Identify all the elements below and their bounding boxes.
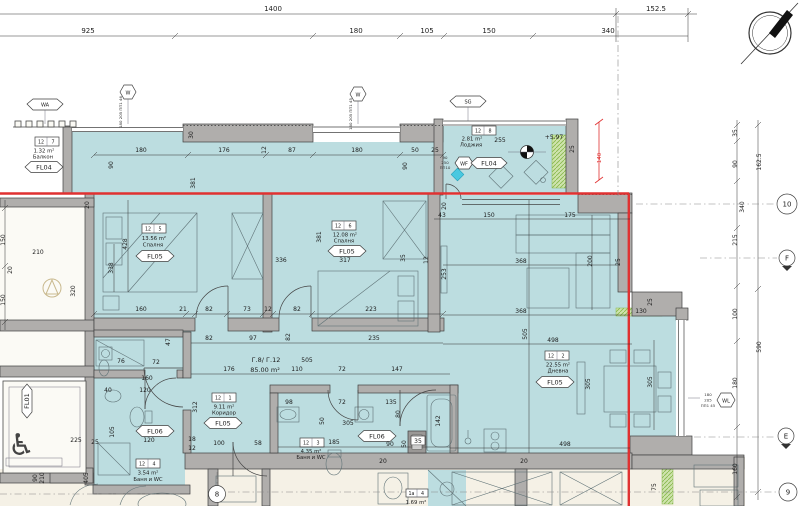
svg-text:12: 12 [548, 354, 554, 360]
dim: 98 [285, 399, 293, 406]
dim-v: 100 [732, 308, 739, 320]
dim: 25 [91, 439, 99, 446]
dim: 12 [264, 306, 272, 313]
dim: 75 [651, 483, 658, 491]
room-area: 2.81 m² [462, 136, 483, 143]
dim: 150 [0, 234, 7, 246]
dim: 80 [395, 410, 402, 418]
window-spec: 205 [704, 398, 712, 403]
dim: 381 [316, 231, 323, 243]
dim-v: 160 [732, 463, 739, 475]
tag-SG: SG [450, 96, 486, 121]
dim: 253 [441, 268, 448, 280]
svg-text:12: 12 [38, 140, 44, 146]
dim: 498 [559, 441, 571, 448]
dim: 35 [400, 254, 407, 262]
axis-label: 8 [215, 491, 219, 499]
svg-text:W: W [126, 91, 131, 97]
dim: 185 [328, 439, 340, 446]
dim-seg: 925 [81, 27, 94, 35]
dim: 20 [441, 202, 448, 210]
room-area: 1.69 m² [406, 499, 427, 506]
dim: 200 [587, 255, 594, 267]
svg-text:4: 4 [152, 462, 155, 468]
svg-text:3: 3 [316, 441, 319, 447]
room-area: 4.35 m² [301, 448, 322, 455]
dim: 18 [188, 436, 196, 443]
dim: 20 [520, 458, 528, 465]
svg-text:12: 12 [475, 129, 481, 135]
dim: 12 [261, 146, 268, 154]
svg-text:12: 12 [215, 396, 221, 402]
dim: 20 [379, 458, 387, 465]
tag-W2: W 180 205 ПП1 45 [348, 87, 366, 130]
dim: 405 [83, 472, 90, 484]
dim: 50 [411, 147, 419, 154]
dim: 150 [0, 294, 7, 306]
room-name: Коридор [212, 411, 237, 417]
dim-seg: 180 [349, 27, 362, 35]
floor-label: FL05 [547, 379, 563, 387]
dim-seg: 150 [482, 27, 495, 35]
dim-v: 162.5 [756, 153, 763, 170]
dim: 223 [365, 306, 377, 313]
dim: 225 [70, 437, 82, 444]
floor-label: FL06 [369, 433, 385, 441]
dim-v: 215 [732, 234, 739, 246]
dim: 130 [635, 308, 647, 315]
room-area: 3.54 m² [138, 470, 159, 477]
level-label: +5.97 [545, 134, 564, 141]
wheelchair-icon: ♿ [8, 428, 35, 463]
tag-WL: WL 180 205 ПП1 45 [688, 392, 735, 408]
svg-text:W: W [356, 93, 361, 99]
dim-right-offset: 152.5 [646, 5, 666, 13]
dim: 82 [205, 335, 213, 342]
floor-label: FL06 [147, 428, 163, 436]
dim: 505 [522, 328, 529, 340]
dim: 176 [223, 366, 235, 373]
dim: 90 [108, 161, 115, 169]
dim: 150 [483, 212, 495, 219]
floor-plan-canvas: ♿ FL01 [0, 0, 800, 506]
dim: 73 [243, 306, 251, 313]
dim: 21 [179, 306, 187, 313]
dim: 72 [338, 366, 346, 373]
window-spec: 180 205 ПП1 46 [118, 96, 123, 128]
dim: 40 [104, 387, 112, 394]
dim: 180 [351, 147, 363, 154]
dim: 336 [275, 257, 287, 264]
apartment-code: Г.8/ Г.12 [252, 356, 281, 364]
dim: 30 [188, 131, 195, 139]
svg-text:5: 5 [158, 227, 161, 233]
dim: 210 [39, 472, 46, 484]
dim-seg: 105 [420, 27, 433, 35]
apartment-room-fills [72, 126, 678, 506]
dim: 72 [152, 359, 160, 366]
dim: 25 [569, 145, 576, 153]
elevator: ♿ FL01 [3, 381, 86, 473]
north-compass-icon [741, 3, 798, 64]
dim: 90 [32, 474, 39, 482]
dim: 25 [615, 258, 622, 266]
floor-label: FL04 [481, 160, 497, 168]
svg-text:12: 12 [139, 462, 145, 468]
svg-text:1a: 1a [409, 491, 415, 497]
svg-text:WL: WL [722, 399, 730, 405]
room-name: Дневна [548, 369, 569, 375]
room-name: Лоджия [460, 143, 482, 149]
dim: 428 [122, 238, 129, 250]
room-area: 13.56 m² [142, 235, 166, 242]
axis-label: E [784, 433, 788, 441]
dim-v: 180 [732, 377, 739, 389]
svg-text:6: 6 [348, 224, 351, 230]
svg-text:4: 4 [421, 491, 424, 497]
svg-text:7: 7 [51, 140, 54, 146]
dim: 43 [438, 212, 446, 219]
room-name: Спалня [143, 243, 163, 249]
dim: 47 [165, 338, 172, 346]
dim: 381 [190, 177, 197, 189]
svg-text:WF: WF [460, 162, 468, 168]
tag-W1: W 180 205 ПП1 46 [118, 85, 136, 128]
dim: 97 [249, 335, 257, 342]
dim: 50 [319, 417, 326, 425]
dim: 76 [117, 358, 125, 365]
svg-text:2: 2 [561, 354, 564, 360]
dim: 20 [84, 201, 91, 209]
dim: 90 [402, 162, 409, 170]
dim: 82 [285, 333, 292, 341]
dim: 180 [135, 147, 147, 154]
dim: 82 [293, 306, 301, 313]
dim: 147 [391, 366, 403, 373]
dim-v: 590 [756, 341, 763, 353]
svg-text:WA: WA [41, 103, 50, 109]
room-balcony-fill [72, 131, 183, 193]
floor-label: FL05 [215, 420, 231, 428]
dim: 12 [423, 256, 430, 264]
dim: 160 [135, 306, 147, 313]
dim: 312 [192, 401, 199, 413]
dim: 505 [301, 357, 313, 364]
axis-label: F [785, 255, 789, 263]
dim-v: 90 [732, 160, 739, 168]
tag-WA: WA [27, 99, 63, 124]
right-dimensions: 35 90 340 215 162.5 100 180 160 590 [732, 120, 763, 500]
room-name: Баня и WC [296, 455, 326, 461]
elevator-label: FL01 [23, 393, 31, 409]
dim: 72 [338, 399, 346, 406]
dim: 82 [205, 306, 213, 313]
dim: 135 [385, 399, 397, 406]
dim: 58 [254, 440, 262, 447]
window-spec: 180 205 ПП1 45 [348, 98, 353, 130]
dim: 105 [109, 426, 116, 438]
dim: 120 [143, 437, 155, 444]
room-area: 12.08 m² [333, 232, 357, 239]
dim: 175 [564, 212, 576, 219]
dim: 235 [368, 335, 380, 342]
floor-label: FL05 [339, 248, 355, 256]
dim: 90 [386, 441, 394, 448]
dim: 120 [139, 387, 151, 394]
apartment-area: 85.00 m² [250, 366, 280, 374]
window-spec: 180 [704, 392, 712, 397]
dim: 498 [547, 337, 559, 344]
dim: 35 [414, 438, 422, 445]
dim: 338 [108, 262, 115, 274]
svg-text:8: 8 [488, 129, 491, 135]
dim: 25 [647, 298, 654, 306]
dim-seg: 340 [601, 27, 614, 35]
dim: 160 [141, 375, 153, 382]
floor-plan-drawing: ♿ FL01 [0, 0, 800, 506]
room-name: Спалня [334, 239, 354, 245]
room-name: Балкон [33, 155, 53, 161]
dim: 317 [339, 257, 351, 264]
dim: 255 [494, 137, 506, 144]
dim: 305 [647, 376, 654, 388]
dim: 210 [32, 249, 44, 256]
svg-text:1: 1 [228, 396, 231, 402]
dim: 50 [401, 440, 408, 448]
dim: 20 [7, 266, 14, 274]
room-area: 22.55 m² [546, 362, 570, 369]
dim: 100 [213, 440, 225, 447]
dim: 87 [288, 147, 296, 154]
dim: 368 [515, 308, 527, 315]
dim: 176 [218, 147, 230, 154]
dim: 12 [188, 445, 196, 452]
dim-total-width: 1400 [264, 5, 282, 13]
svg-text:SG: SG [464, 100, 471, 106]
dim: 110 [291, 366, 303, 373]
dim: 305 [585, 378, 592, 390]
room-name: Баня и WC [133, 477, 163, 483]
axis-label: 10 [783, 201, 792, 209]
room-label-balcony: 12 7 1.32 m² Балкон FL04 [25, 137, 63, 173]
dim: 305 [342, 420, 354, 427]
svg-text:12: 12 [303, 441, 309, 447]
dim: 25 [431, 147, 439, 154]
dim-v: 340 [739, 201, 746, 213]
svg-text:12: 12 [335, 224, 341, 230]
room-area: 9.11 m² [214, 404, 235, 411]
svg-text:12: 12 [145, 227, 151, 233]
room-living-fill [443, 195, 630, 453]
window-spec: ПП10 [440, 165, 451, 170]
dim: 320 [70, 285, 77, 297]
dim: 368 [515, 258, 527, 265]
dim: 142 [435, 415, 442, 427]
window-spec: ПП1 45 [701, 403, 716, 408]
floor-label: FL04 [36, 164, 52, 172]
axis-label: 9 [786, 489, 790, 497]
floor-label: FL05 [147, 253, 163, 261]
red-dim-label: 140 [597, 152, 603, 163]
dim-v: 35 [732, 129, 739, 137]
room-area: 1.32 m² [34, 148, 55, 155]
